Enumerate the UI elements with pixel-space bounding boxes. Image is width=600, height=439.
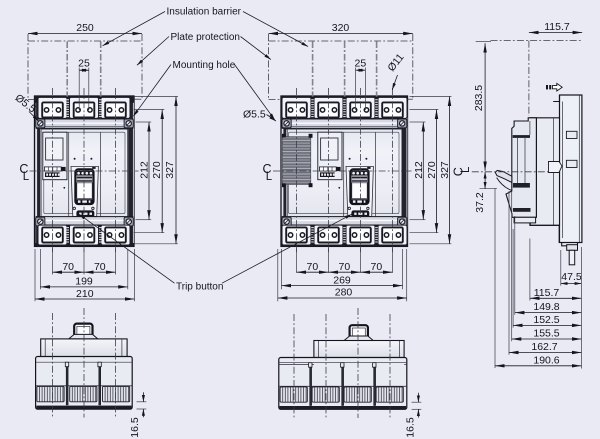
svg-text:16.5: 16.5 [405,417,417,438]
svg-text:280: 280 [335,287,353,299]
svg-text:Ø5.5: Ø5.5 [243,109,266,121]
svg-text:155.5: 155.5 [533,328,559,340]
svg-text:47.5: 47.5 [561,271,582,283]
svg-text:115.7: 115.7 [534,287,560,299]
svg-text:25: 25 [78,57,90,69]
svg-text:283.5: 283.5 [473,85,485,111]
svg-text:199: 199 [75,276,93,288]
svg-text:70: 70 [94,261,106,273]
svg-text:162.7: 162.7 [531,341,557,353]
svg-text:212: 212 [413,161,425,179]
svg-text:270: 270 [426,161,438,179]
svg-text:149.8: 149.8 [533,301,559,313]
svg-text:327: 327 [439,161,451,179]
svg-text:70: 70 [307,261,319,273]
svg-text:16.5: 16.5 [129,417,141,438]
svg-text:152.5: 152.5 [533,314,559,326]
svg-text:25: 25 [355,57,367,69]
svg-text:37.2: 37.2 [474,192,486,213]
svg-text:Plate protection: Plate protection [171,32,241,43]
svg-text:70: 70 [62,261,74,273]
svg-text:Insulation barrier: Insulation barrier [167,7,242,18]
svg-text:212: 212 [139,161,151,179]
svg-text:320: 320 [332,22,350,34]
svg-text:270: 270 [151,161,163,179]
svg-text:115.7: 115.7 [544,21,570,33]
svg-text:L: L [23,171,30,183]
svg-text:190.6: 190.6 [533,354,559,366]
svg-text:210: 210 [76,288,94,300]
svg-text:269: 269 [333,274,351,286]
svg-text:L: L [460,166,472,173]
svg-text:Mounting hole: Mounting hole [173,60,236,71]
svg-text:70: 70 [371,261,383,273]
svg-text:L: L [266,171,273,183]
svg-text:Trip button: Trip button [176,282,223,293]
svg-text:70: 70 [339,261,351,273]
svg-text:327: 327 [164,161,176,179]
svg-text:250: 250 [76,22,94,34]
